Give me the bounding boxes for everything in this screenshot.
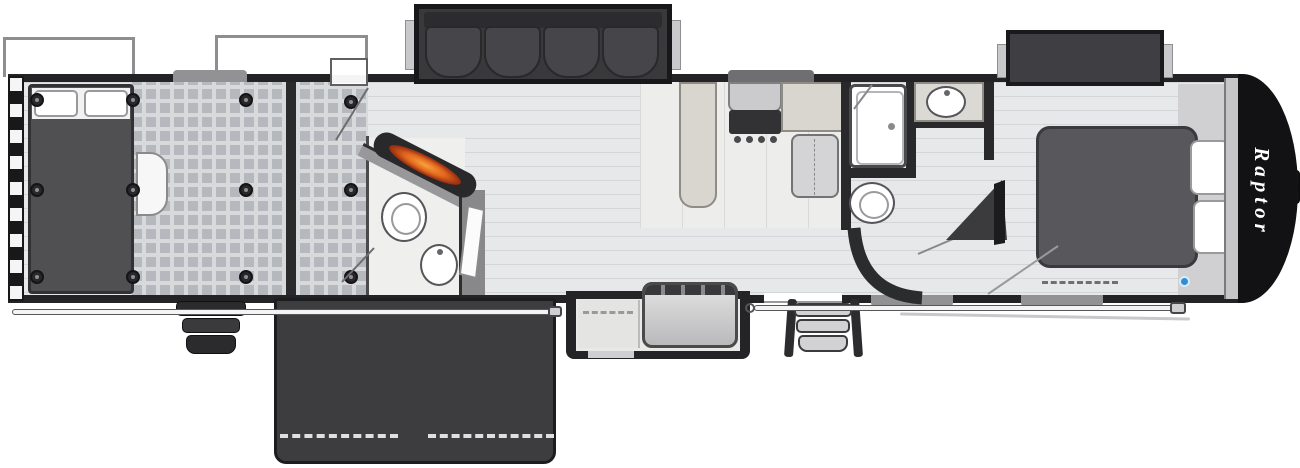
front-cap-zone: Raptor	[0, 0, 1300, 468]
floorplan-canvas: Raptor	[0, 0, 1300, 468]
brand-logo: Raptor	[1249, 112, 1275, 272]
